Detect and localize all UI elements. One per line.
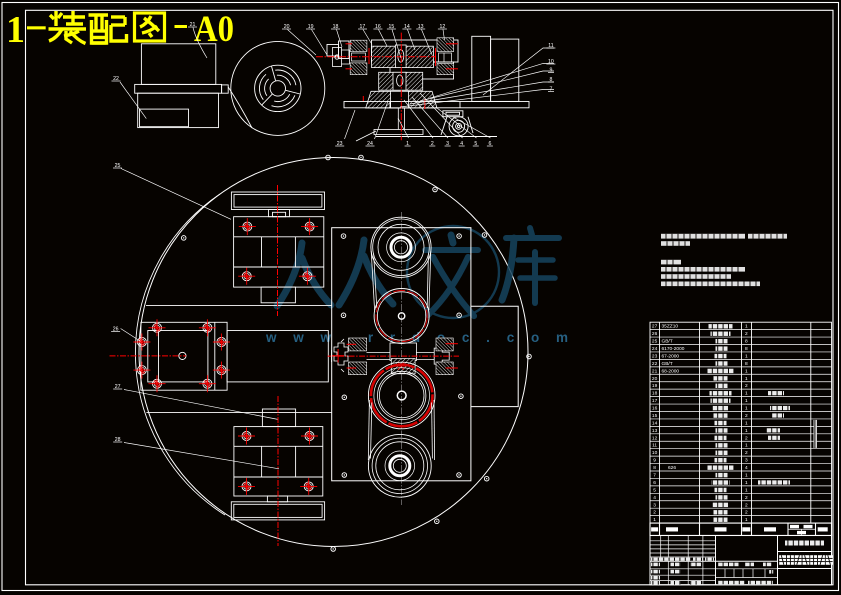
- svg-text:23: 23: [652, 353, 658, 359]
- svg-text:1: 1: [745, 376, 748, 382]
- svg-text:2: 2: [745, 331, 748, 337]
- svg-text:16: 16: [652, 406, 658, 412]
- svg-text:4: 4: [653, 495, 656, 501]
- svg-text:17: 17: [652, 398, 658, 404]
- svg-text:2: 2: [745, 435, 748, 441]
- svg-text:1: 1: [745, 428, 748, 434]
- svg-text:1: 1: [745, 398, 748, 404]
- svg-text:1: 1: [745, 473, 748, 479]
- svg-text:7: 7: [653, 473, 656, 479]
- svg-text:1: 1: [745, 517, 748, 523]
- svg-text:1: 1: [745, 324, 748, 330]
- svg-text:3: 3: [745, 458, 748, 464]
- svg-text:67-2000: 67-2000: [662, 353, 680, 359]
- svg-text:6170-2000: 6170-2000: [662, 346, 685, 352]
- svg-text:25: 25: [652, 339, 658, 345]
- svg-text:1: 1: [745, 353, 748, 359]
- svg-text:26: 26: [652, 331, 658, 337]
- svg-text:GB/T: GB/T: [662, 339, 673, 345]
- svg-text:2: 2: [745, 413, 748, 419]
- svg-text:27: 27: [652, 324, 658, 330]
- svg-text:21: 21: [652, 368, 658, 374]
- svg-text:1: 1: [6, 9, 25, 51]
- svg-text:14: 14: [652, 420, 658, 426]
- svg-text:3: 3: [653, 502, 656, 508]
- svg-text:626: 626: [668, 465, 676, 471]
- svg-text:5: 5: [653, 487, 656, 493]
- svg-text:2: 2: [745, 383, 748, 389]
- svg-text:2: 2: [745, 502, 748, 508]
- svg-text:1: 1: [745, 443, 748, 449]
- svg-text:2: 2: [745, 510, 748, 516]
- svg-text:1: 1: [745, 406, 748, 412]
- svg-text:8: 8: [745, 361, 748, 367]
- svg-text:1: 1: [745, 480, 748, 486]
- svg-text:18: 18: [652, 391, 658, 397]
- svg-text:8: 8: [745, 339, 748, 345]
- svg-text:4: 4: [745, 465, 748, 471]
- svg-text:8: 8: [745, 346, 748, 352]
- svg-text:35ZZ10: 35ZZ10: [662, 324, 679, 330]
- svg-text:15: 15: [652, 413, 658, 419]
- svg-text:68-2000: 68-2000: [662, 368, 680, 374]
- svg-text:22: 22: [652, 361, 658, 367]
- svg-text:1: 1: [745, 391, 748, 397]
- svg-text:10: 10: [652, 450, 658, 456]
- svg-text:1: 1: [745, 368, 748, 374]
- svg-text:2: 2: [653, 510, 656, 516]
- svg-text:19: 19: [652, 383, 658, 389]
- svg-text:12: 12: [652, 435, 658, 441]
- svg-text:6: 6: [653, 480, 656, 486]
- svg-text:20: 20: [652, 376, 658, 382]
- svg-text:2: 2: [745, 450, 748, 456]
- svg-text:8: 8: [653, 465, 656, 471]
- svg-text:11: 11: [652, 443, 657, 449]
- svg-text:1: 1: [745, 487, 748, 493]
- svg-text:2: 2: [745, 495, 748, 501]
- svg-text:9: 9: [653, 458, 656, 464]
- svg-text:1: 1: [745, 420, 748, 426]
- svg-text:13: 13: [652, 428, 658, 434]
- svg-text:GB/T: GB/T: [662, 361, 673, 367]
- svg-text:24: 24: [652, 346, 658, 352]
- svg-text:1: 1: [653, 517, 656, 523]
